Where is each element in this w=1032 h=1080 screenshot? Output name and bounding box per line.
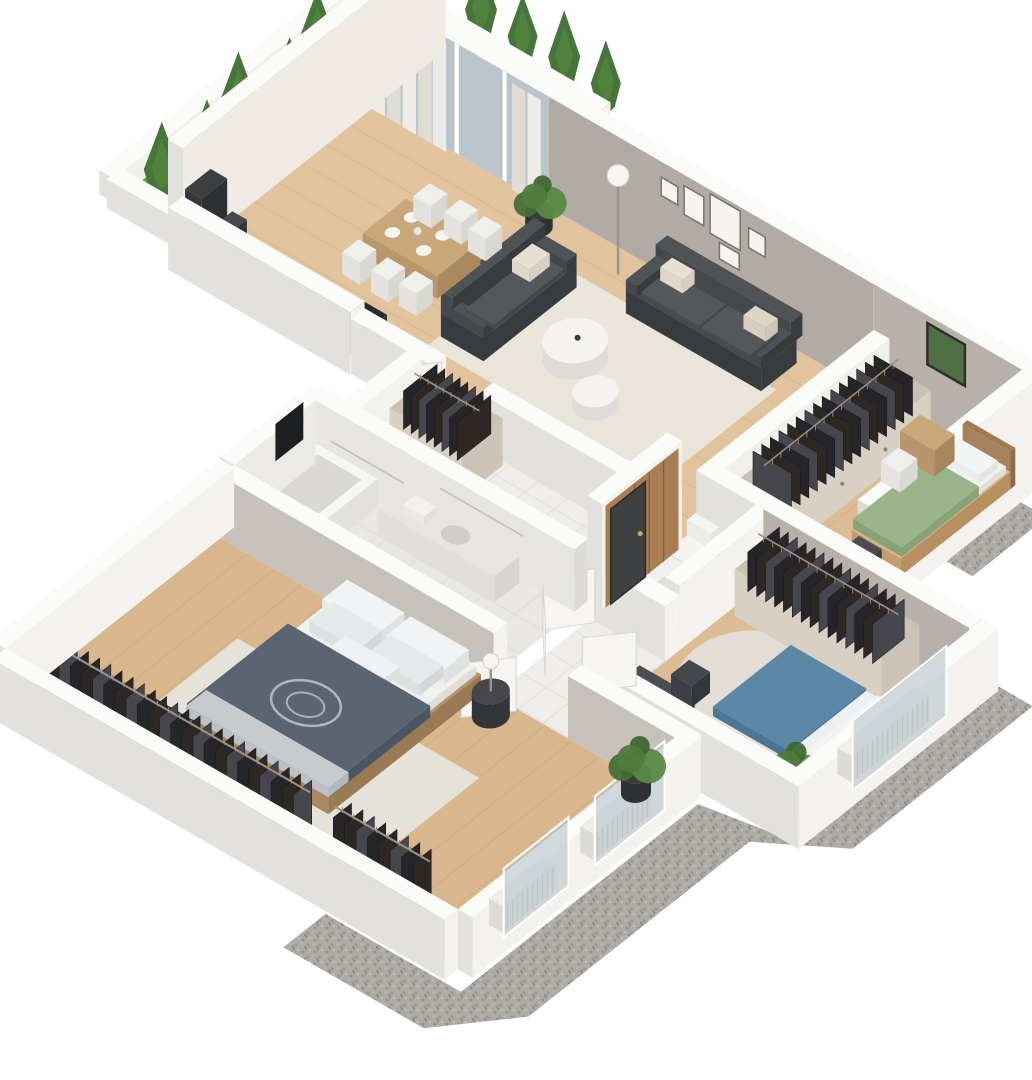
glass-door-frame xyxy=(455,43,459,155)
dining-vase xyxy=(414,227,422,235)
floorplan-svg xyxy=(0,0,1032,1080)
entrance-wood-seam xyxy=(663,461,664,563)
wardrobe-handle xyxy=(883,448,887,452)
wardrobe-handle xyxy=(840,482,844,486)
coffee-table-decor xyxy=(575,335,581,341)
glass-door-frame xyxy=(503,70,507,182)
entrance-wood-seam xyxy=(649,472,650,574)
front-door-handle xyxy=(638,531,643,536)
curtain-strip xyxy=(512,83,526,197)
floorplan-3d-render xyxy=(0,0,1032,1080)
coffee-table-small xyxy=(572,375,619,420)
coffee-table xyxy=(542,318,608,380)
